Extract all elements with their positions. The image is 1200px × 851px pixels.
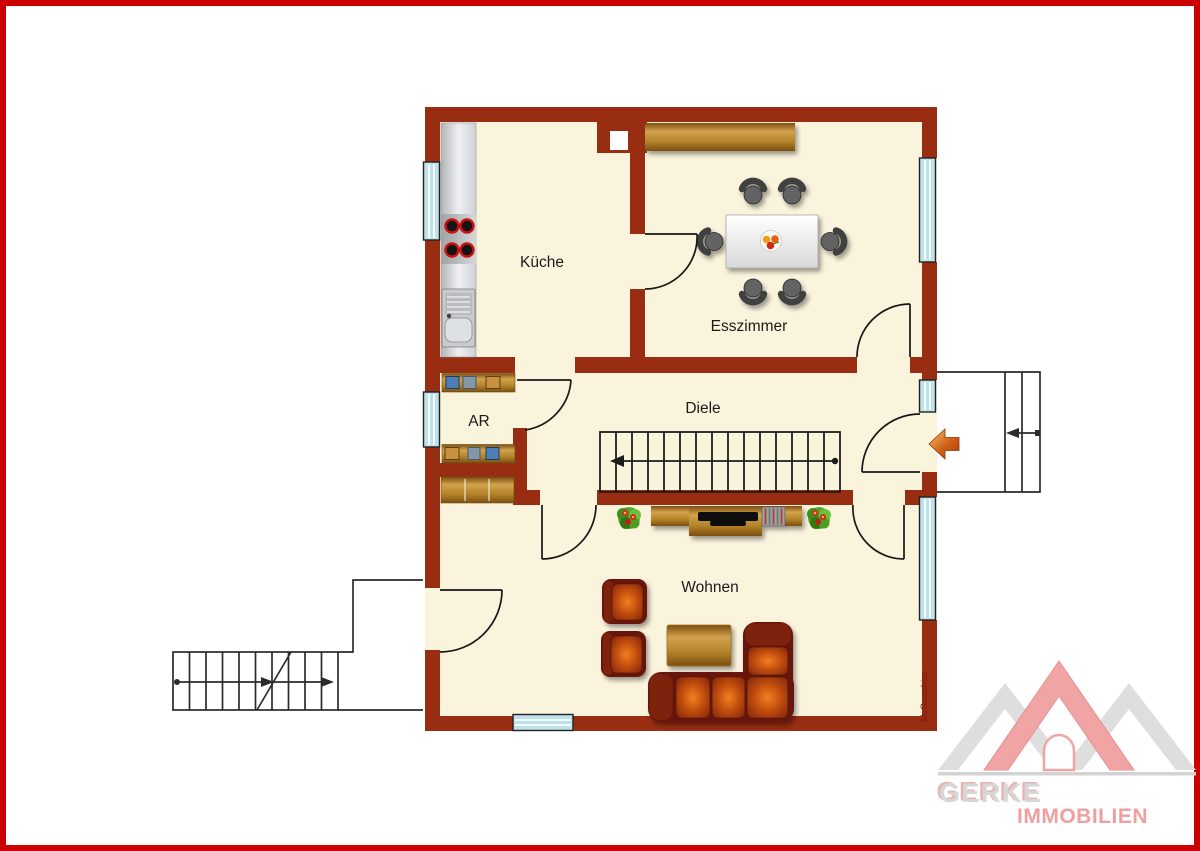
- logo-suffix-text: IMMOBILIEN: [1017, 805, 1148, 828]
- logo-name-text: GERKE: [939, 778, 1043, 808]
- sink-icon: [442, 289, 475, 347]
- dining-sideboard: [645, 123, 795, 151]
- coffee-table: [667, 625, 731, 666]
- logo-divider-line: [938, 772, 1196, 776]
- living-window-right: [920, 497, 936, 620]
- agency-logo: GERKE GERKE IMMOBILIEN: [937, 661, 1197, 828]
- fruit-bowl-icon: [761, 231, 782, 252]
- hall-label: Diele: [685, 400, 720, 417]
- armchair-bottom: [601, 631, 646, 677]
- storage-shelf-bottom: [442, 445, 515, 464]
- kitchen-window: [424, 162, 440, 240]
- kitchen-counter: [441, 123, 476, 357]
- armchair-top: [602, 579, 647, 624]
- exterior-landing-right: [937, 372, 1040, 492]
- logo-door-arch: [1044, 735, 1074, 770]
- storage-window: [424, 392, 440, 447]
- storage-shelf-top: [442, 374, 515, 393]
- floorplan-canvas: Küche Esszimmer Diele AR Wohnen McGrundr…: [0, 0, 1200, 851]
- kitchen-label: Küche: [520, 254, 564, 271]
- dining-label: Esszimmer: [711, 318, 788, 335]
- watermark-text: McGrundriss: [919, 670, 929, 722]
- dining-window: [920, 158, 936, 262]
- cd-rack-icon: [762, 507, 785, 526]
- chimney-shaft: [610, 131, 628, 150]
- hall-window: [920, 380, 936, 412]
- wardrobe: [441, 477, 514, 503]
- living-window-bottom: [513, 715, 573, 731]
- exterior-stairs-left: [173, 580, 423, 710]
- living-label: Wohnen: [681, 579, 738, 596]
- storage-label: AR: [468, 413, 490, 430]
